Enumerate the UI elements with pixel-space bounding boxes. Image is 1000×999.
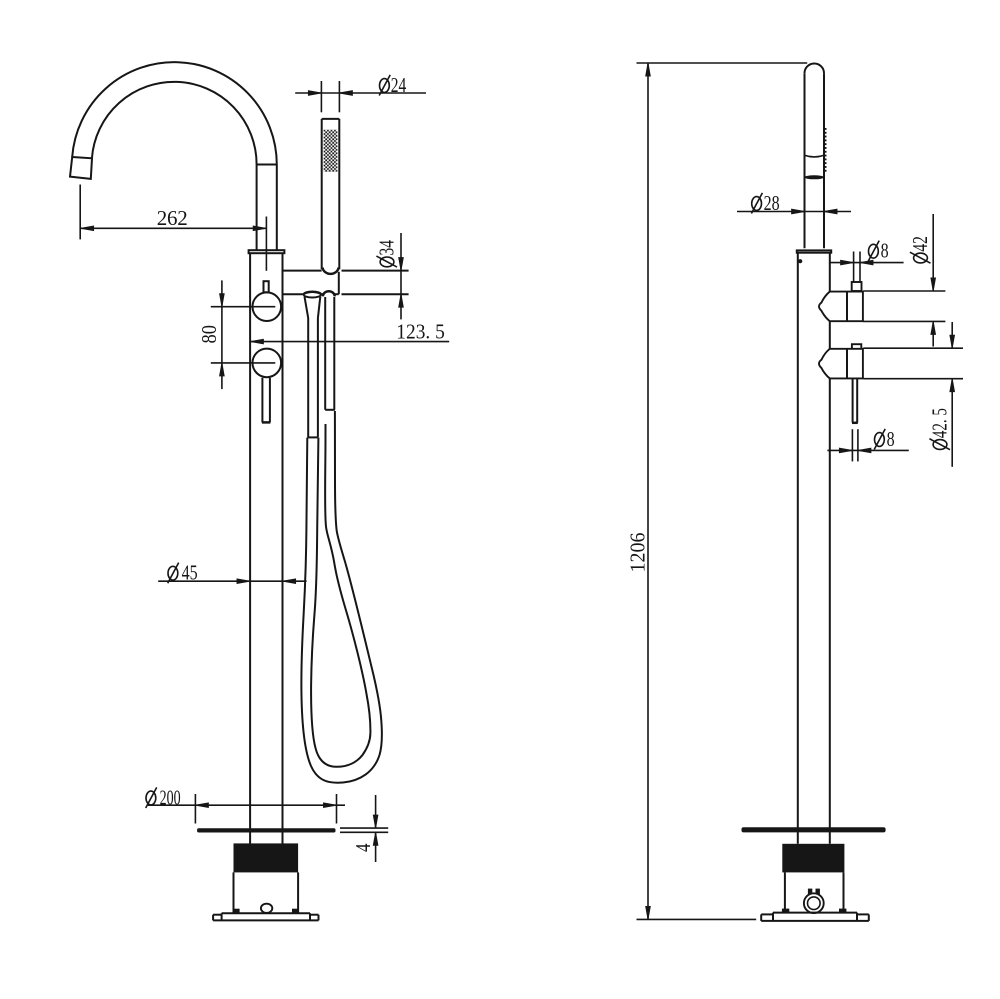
svg-text:34: 34 — [374, 240, 398, 256]
svg-text:1206: 1206 — [626, 533, 650, 573]
svg-text:123. 5: 123. 5 — [396, 319, 445, 343]
svg-text:28: 28 — [764, 191, 780, 215]
svg-text:42: 42 — [908, 236, 932, 252]
svg-text:262: 262 — [157, 206, 188, 230]
svg-text:45: 45 — [182, 561, 198, 585]
svg-text:4: 4 — [351, 843, 375, 852]
svg-text:24: 24 — [391, 73, 407, 97]
svg-text:8: 8 — [887, 427, 895, 451]
svg-text:42. 5: 42. 5 — [927, 408, 951, 438]
svg-text:200: 200 — [160, 785, 181, 809]
svg-text:80: 80 — [197, 325, 221, 344]
svg-text:8: 8 — [881, 239, 889, 263]
